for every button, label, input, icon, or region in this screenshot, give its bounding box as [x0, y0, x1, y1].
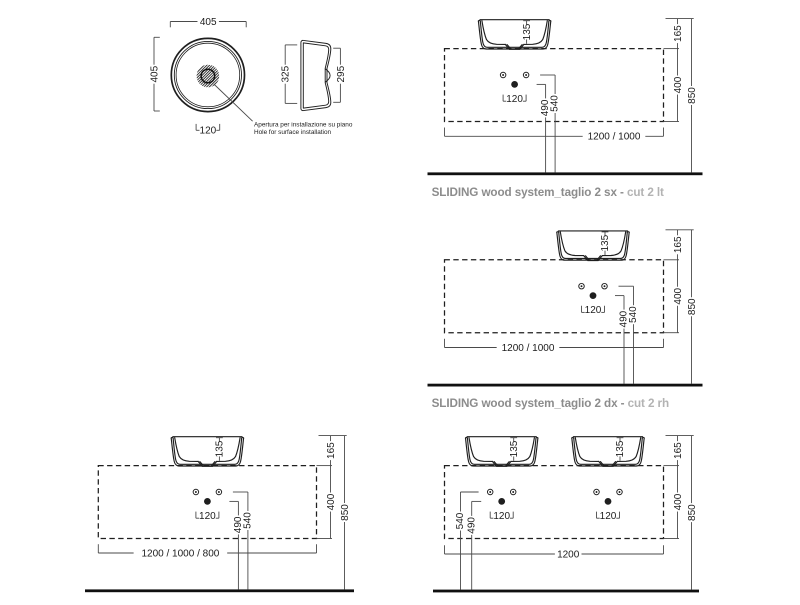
svg-text:400: 400: [673, 493, 684, 510]
svg-text:135: 135: [509, 440, 520, 457]
svg-text:165: 165: [673, 236, 684, 253]
svg-text:400: 400: [673, 287, 684, 304]
svg-text:135: 135: [615, 440, 626, 457]
svg-text:120: 120: [493, 511, 510, 522]
svg-text:165: 165: [673, 442, 684, 459]
svg-text:540: 540: [550, 95, 561, 112]
svg-text:120: 120: [200, 125, 217, 136]
svg-text:405: 405: [149, 65, 160, 82]
svg-text:540: 540: [243, 512, 254, 529]
svg-text:1200 / 1000 / 800: 1200 / 1000 / 800: [141, 548, 219, 559]
svg-text:SLIDING wood system_taglio 2 d: SLIDING wood system_taglio 2 dx - cut 2 …: [432, 397, 669, 410]
svg-text:850: 850: [340, 504, 351, 521]
svg-text:120: 120: [506, 94, 523, 105]
svg-text:1200 / 1000: 1200 / 1000: [502, 343, 555, 354]
svg-text:400: 400: [673, 76, 684, 93]
svg-text:135: 135: [522, 23, 533, 40]
svg-text:Apertura per installazione su: Apertura per installazione su piano: [254, 121, 353, 128]
svg-text:120: 120: [600, 511, 617, 522]
svg-text:850: 850: [687, 87, 698, 104]
svg-text:Hole for surface installation: Hole for surface installation: [254, 129, 332, 136]
svg-text:120: 120: [585, 305, 602, 316]
svg-text:325: 325: [281, 65, 292, 82]
svg-text:850: 850: [687, 298, 698, 315]
svg-text:135: 135: [215, 440, 226, 457]
svg-text:1200: 1200: [557, 549, 580, 560]
svg-text:SLIDING wood system_taglio 2 s: SLIDING wood system_taglio 2 sx - cut 2 …: [432, 186, 664, 199]
svg-text:165: 165: [326, 442, 337, 459]
svg-text:405: 405: [200, 17, 217, 28]
svg-text:850: 850: [687, 504, 698, 521]
svg-text:540: 540: [628, 306, 639, 323]
svg-text:295: 295: [336, 65, 347, 82]
svg-text:120: 120: [199, 511, 216, 522]
svg-text:540: 540: [455, 512, 466, 529]
svg-text:135: 135: [600, 234, 611, 251]
svg-text:165: 165: [673, 25, 684, 42]
svg-text:490: 490: [466, 517, 477, 534]
svg-text:1200 / 1000: 1200 / 1000: [588, 132, 641, 143]
svg-text:400: 400: [326, 493, 337, 510]
